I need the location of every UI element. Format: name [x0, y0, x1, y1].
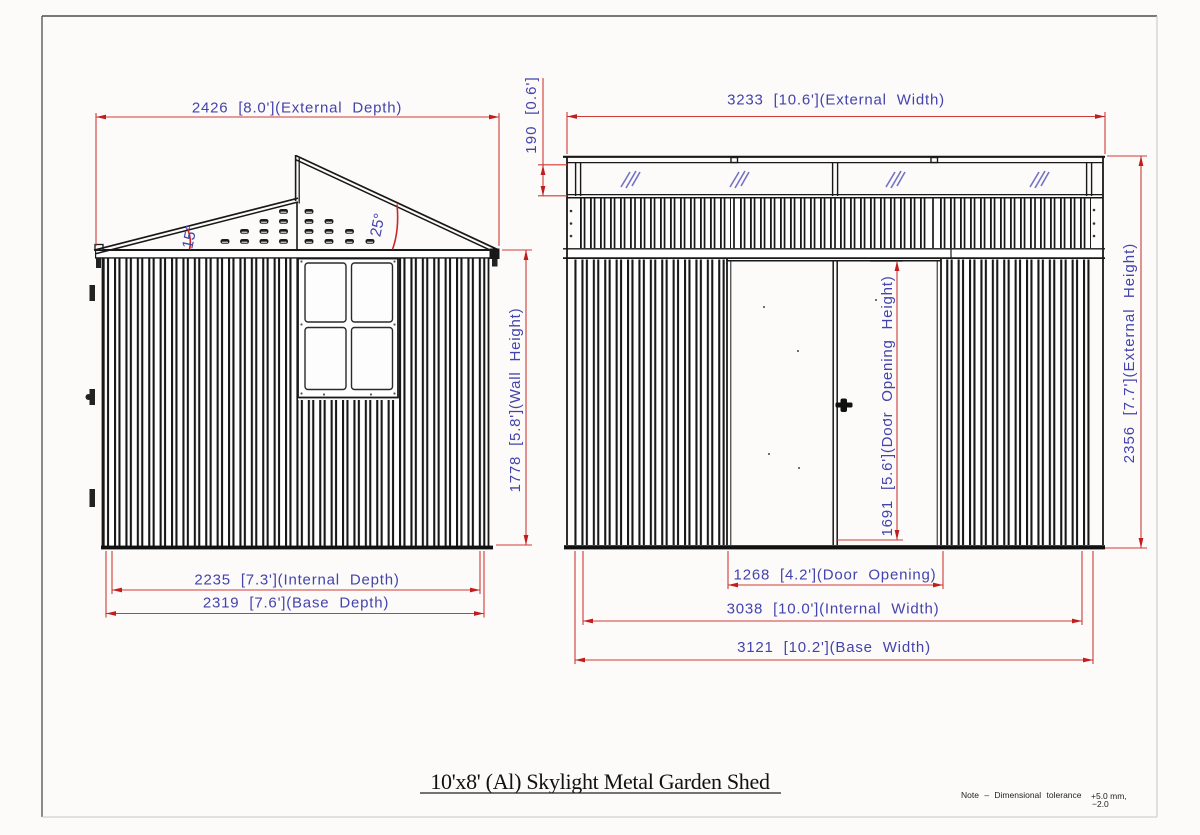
svg-text:3121 [10.2'](Base Width): 3121 [10.2'](Base Width) — [737, 639, 931, 656]
svg-text:2426 [8.0'](External Depth): 2426 [8.0'](External Depth) — [192, 100, 402, 117]
svg-text:10'x8' (Al) Skylight Metal Gar: 10'x8' (Al) Skylight Metal Garden Shed — [430, 769, 770, 794]
svg-text:3038 [10.0'](Internal Width): 3038 [10.0'](Internal Width) — [727, 601, 940, 618]
svg-text:3233 [10.6'](External Width): 3233 [10.6'](External Width) — [727, 92, 945, 109]
svg-text:2356 [7.7'](External Height): 2356 [7.7'](External Height) — [1121, 243, 1138, 463]
svg-text:Note – Dimensional tolerance: Note – Dimensional tolerance — [961, 790, 1082, 800]
svg-text:2319 [7.6'](Base Depth): 2319 [7.6'](Base Depth) — [203, 595, 389, 612]
svg-text:1778 [5.8'](Wall Height): 1778 [5.8'](Wall Height) — [507, 308, 524, 493]
svg-text:−2.0: −2.0 — [1092, 799, 1109, 809]
svg-text:2235 [7.3'](Internal Depth): 2235 [7.3'](Internal Depth) — [194, 572, 399, 589]
svg-text:1268 [4.2'](Door Opening): 1268 [4.2'](Door Opening) — [734, 567, 937, 584]
svg-text:190 [0.6']: 190 [0.6'] — [523, 76, 540, 154]
svg-text:1691 [5.6'](Door Opening He: 1691 [5.6'](Door Opening Height) — [879, 276, 896, 537]
